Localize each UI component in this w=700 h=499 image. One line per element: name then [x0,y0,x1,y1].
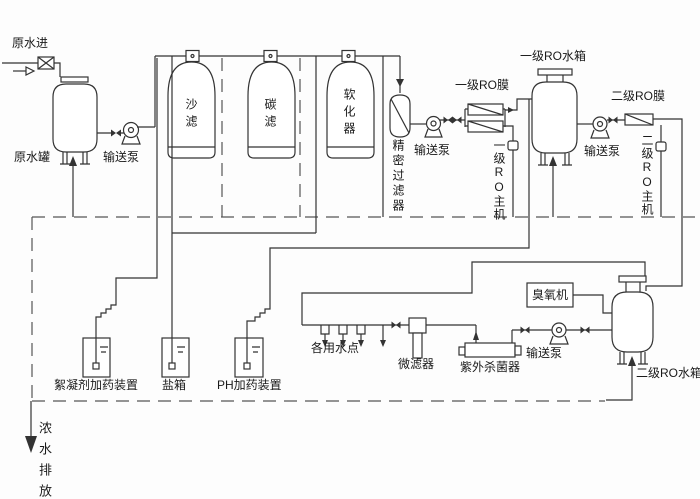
valve-icon [656,142,666,151]
transfer-pump-4-shape [512,323,612,344]
valve-icon [116,130,121,137]
label-ro1-main-unit: 一级RO主机 [493,139,505,221]
label-ro2-main-unit: 二级RO主机 [641,134,653,216]
raw-water-tank-shape [53,77,97,217]
valve-icon [264,51,277,62]
salt-tank-shape [162,338,189,377]
process-flow-diagram: 原水进 原水罐 输送泵 沙滤 碳滤 软化器 精密过滤器 输送泵 一级RO膜 一级… [0,0,700,499]
valve-icon [342,51,355,62]
valve-icon [186,51,199,62]
label-ro2-membrane: 二级RO膜 [611,90,665,102]
label-ozone-machine: 臭氧机 [532,289,568,301]
valve-icon [448,117,453,124]
metering-pump-icon [96,58,157,338]
valve-icon [581,327,586,334]
valve-icon [392,322,397,329]
flocculant-doser-shape [83,338,110,377]
valve-icon [396,322,401,329]
label-uv-sterilizer: 紫外杀菌器 [460,361,520,373]
uv-sterilizer-shape [459,325,521,357]
concentrate-discharge-arrow [25,401,37,453]
ph-doser-shape [235,338,263,377]
label-ph-doser: PH加药装置 [217,379,282,391]
label-softener: 软化器 [343,88,355,139]
label-carbon-filter: 碳滤 [264,98,276,132]
transfer-pump-3-shape [577,117,625,139]
ro2-tank-shape [606,276,653,400]
valve-icon [525,327,530,334]
precision-filter-shape [390,95,426,137]
label-raw-water-in: 原水进 [12,37,48,49]
label-ro2-tank: 二级RO水箱 [636,367,700,379]
flocculant-dosing-line [96,58,157,338]
up-arrow-icon [69,156,77,166]
recirculation-line [302,262,645,325]
valve-icon [453,117,458,124]
label-transfer-pump-1: 输送泵 [103,151,139,163]
label-transfer-pump-4: 输送泵 [526,347,562,359]
label-salt-tank: 盐箱 [162,379,186,391]
valve-icon [585,327,590,334]
up-arrow-icon [628,356,636,366]
label-ro1-membrane: 一级RO膜 [455,79,509,91]
valve-icon [444,117,449,124]
micro-filter-shape [409,318,426,358]
label-transfer-pump-3: 输送泵 [584,145,620,157]
label-concentrate-discharge: 浓水排放 [38,421,51,499]
valve-icon [613,117,618,124]
valve-icon [457,117,462,124]
flow-arrow-icon [26,67,34,75]
up-arrow-icon [549,156,557,166]
ro1-tank-shape [532,69,577,217]
down-arrow-icon [396,79,404,87]
label-precision-filter: 精密过滤器 [392,139,404,214]
valve-icon [508,141,518,150]
valve-icon [111,130,116,137]
raw-water-inlet [2,57,60,77]
label-transfer-pump-2: 输送泵 [414,144,450,156]
piping-linework [0,0,700,499]
label-raw-water-tank: 原水罐 [14,151,50,163]
valve-icon [521,327,526,334]
flow-arrow-icon [508,107,514,113]
tap-arrow-icon [380,340,386,347]
valve-icon [609,117,614,124]
up-arrow-icon [473,331,479,340]
label-sand-filter: 沙滤 [185,98,197,132]
label-ro1-tank: 一级RO水箱 [520,50,586,62]
label-use-points: 各用水点 [311,342,359,354]
label-flocculant-doser: 絮凝剂加药装置 [54,379,138,391]
label-micro-filter: 微滤器 [398,358,434,370]
transfer-pump-2-shape [425,117,465,138]
transfer-pump-1-shape [97,56,155,144]
